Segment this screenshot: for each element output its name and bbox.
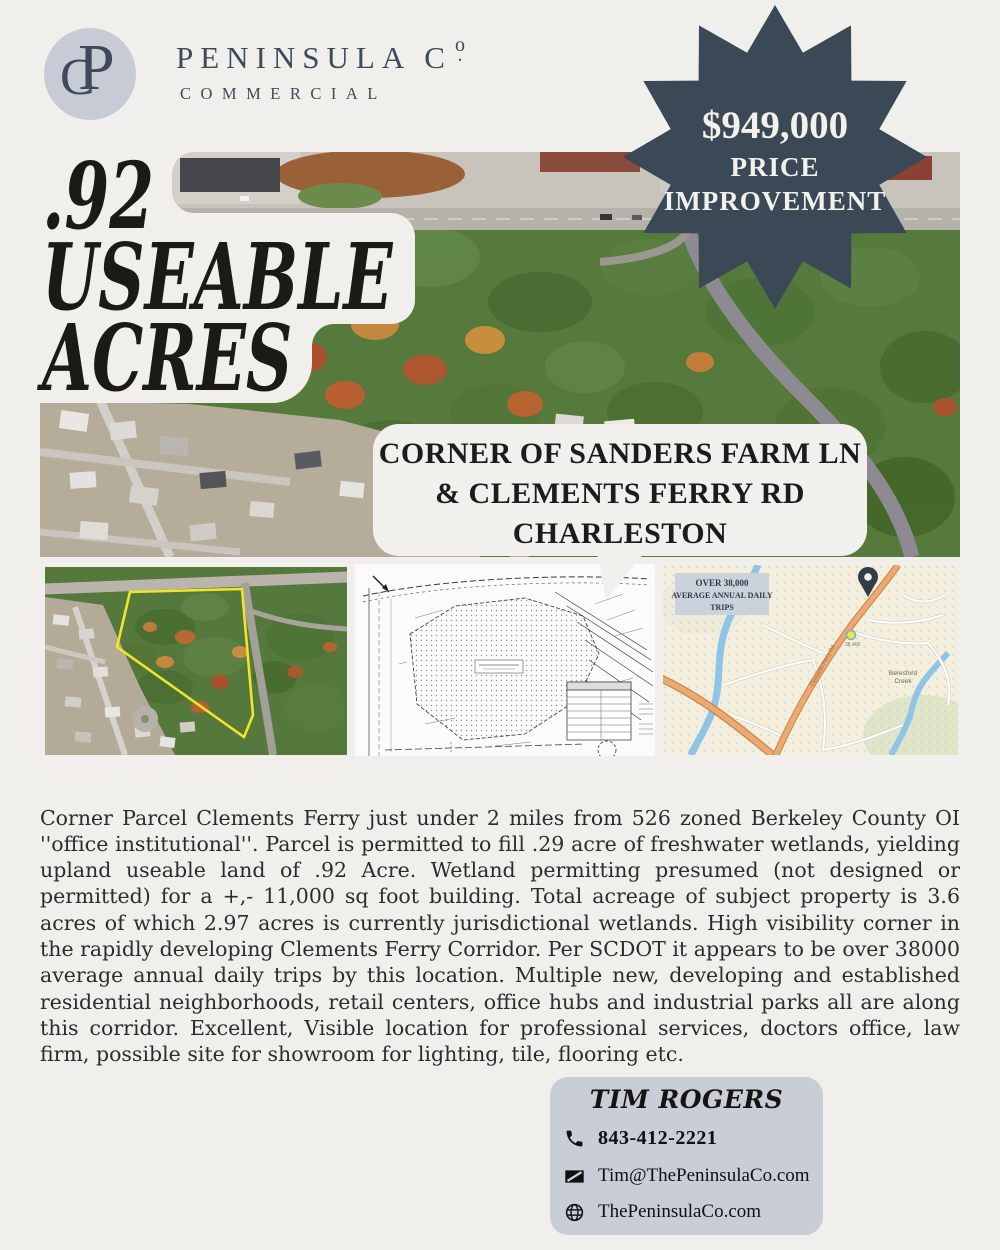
price-amount: $949,000 xyxy=(702,104,848,147)
brand-name-text: PENINSULA C xyxy=(176,40,452,75)
email-icon xyxy=(564,1166,585,1187)
price-line3: IMPROVEMENT xyxy=(664,186,887,216)
headline: .92 USEABLE ACRES xyxy=(42,156,393,399)
price-line2: PRICE xyxy=(730,152,819,182)
contact-card: TIM ROGERS 843-412-2221 Tim@ThePeninsula… xyxy=(550,1077,823,1235)
email-address: Tim@ThePeninsulaCo.com xyxy=(598,1165,810,1187)
brand-co-suffix: o. xyxy=(455,40,465,59)
phone-number: 843-412-2221 xyxy=(598,1127,717,1150)
agent-name: TIM ROGERS xyxy=(550,1085,823,1114)
phone-row: 843-412-2221 xyxy=(564,1125,717,1151)
property-description: Corner Parcel Clements Ferry just under … xyxy=(40,805,960,1068)
location-map: Clements Ferry Rd 38,400 OVER 38,000 AVE… xyxy=(663,565,958,755)
aadt-line2: AVERAGE ANNUAL DAILY xyxy=(671,591,773,600)
map-traffic-count: 38,400 xyxy=(845,642,861,648)
parcel-outline-photo xyxy=(45,567,347,755)
creek-label-1: Beresford xyxy=(889,670,918,677)
price-improvement-badge: $949,000 PRICE IMPROVEMENT xyxy=(612,0,938,320)
company-logo: C P xyxy=(44,28,136,120)
location-callout: CORNER OF SANDERS FARM LN & CLEMENTS FER… xyxy=(373,424,867,556)
flyer-page: .92 USEABLE ACRES C P PENINSULA Co. COMM… xyxy=(0,0,1000,1250)
location-callout-text: CORNER OF SANDERS FARM LN & CLEMENTS FER… xyxy=(373,434,867,554)
globe-icon xyxy=(564,1202,585,1223)
brand-tagline: COMMERCIAL xyxy=(180,84,387,104)
callout-line2: & CLEMENTS FERRY RD xyxy=(373,474,867,514)
phone-icon xyxy=(564,1128,585,1149)
logo-monogram-p: P xyxy=(78,30,115,106)
aadt-line3: TRIPS xyxy=(710,603,734,612)
aadt-line1: OVER 38,000 xyxy=(695,578,749,588)
website-url: ThePeninsulaCo.com xyxy=(598,1201,761,1223)
email-row: Tim@ThePeninsulaCo.com xyxy=(564,1163,810,1189)
callout-line3: CHARLESTON xyxy=(373,514,867,554)
creek-label-2: Creek xyxy=(894,678,912,685)
callout-line1: CORNER OF SANDERS FARM LN xyxy=(373,434,867,474)
brand-name: PENINSULA Co. xyxy=(176,40,465,76)
website-row: ThePeninsulaCo.com xyxy=(564,1199,761,1225)
